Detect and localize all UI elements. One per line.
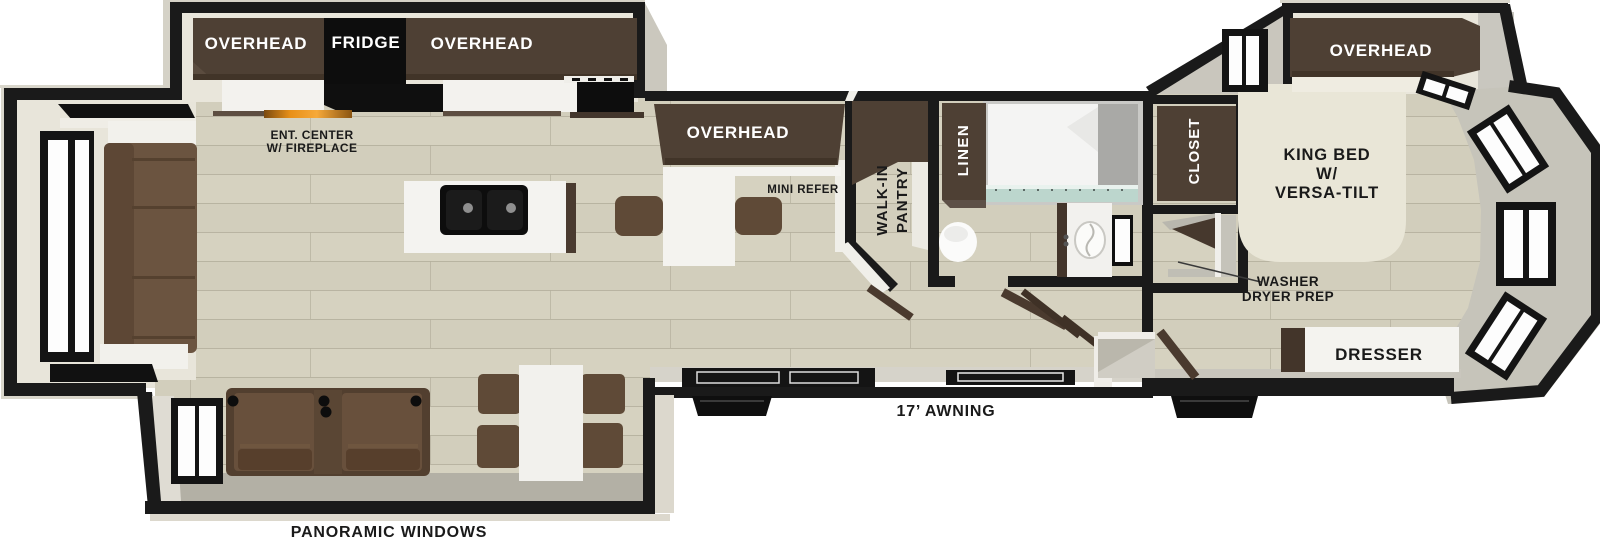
svg-text:KING BED: KING BED <box>1283 146 1370 164</box>
svg-text:17’ AWNING: 17’ AWNING <box>897 403 996 420</box>
svg-text:ENT. CENTER: ENT. CENTER <box>270 128 353 142</box>
svg-text:DRYER PREP: DRYER PREP <box>1242 289 1334 304</box>
svg-text:WALK-IN: WALK-IN <box>874 164 891 235</box>
svg-text:FRIDGE: FRIDGE <box>331 33 400 52</box>
svg-text:W/ FIREPLACE: W/ FIREPLACE <box>267 141 358 155</box>
svg-text:OVERHEAD: OVERHEAD <box>431 34 534 53</box>
svg-text:OVERHEAD: OVERHEAD <box>1330 41 1433 60</box>
svg-text:VERSA-TILT: VERSA-TILT <box>1275 184 1379 202</box>
svg-text:PANORAMIC WINDOWS: PANORAMIC WINDOWS <box>291 524 487 538</box>
svg-text:OVERHEAD: OVERHEAD <box>205 34 308 53</box>
svg-text:DRESSER: DRESSER <box>1335 345 1423 364</box>
svg-text:PANTRY: PANTRY <box>894 167 911 233</box>
svg-text:W/: W/ <box>1316 165 1338 183</box>
svg-text:CLOSET: CLOSET <box>1186 118 1203 185</box>
svg-text:OVERHEAD: OVERHEAD <box>687 123 790 142</box>
svg-text:WASHER: WASHER <box>1257 274 1319 289</box>
svg-text:LINEN: LINEN <box>955 124 972 177</box>
svg-text:MINI REFER: MINI REFER <box>767 184 839 196</box>
